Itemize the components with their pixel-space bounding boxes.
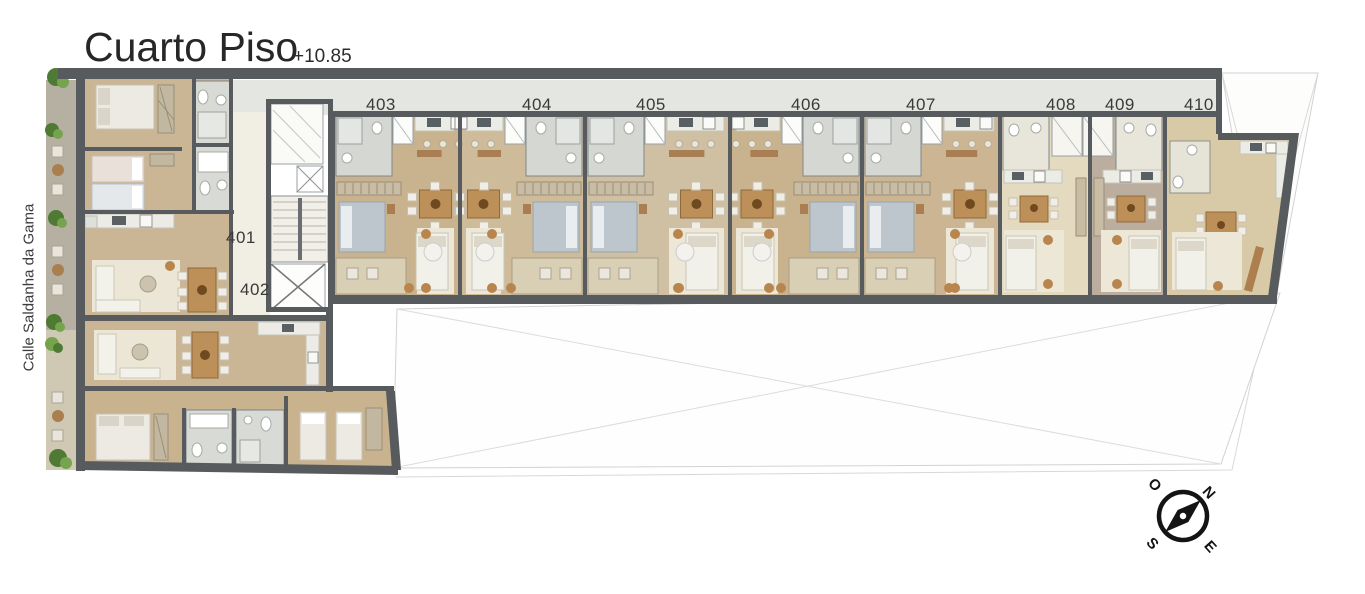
- elevation-label: +10.85: [293, 46, 352, 68]
- unit-label-402: 402: [240, 280, 270, 300]
- unit-label-410: 410: [1184, 95, 1214, 115]
- compass-west-label: O: [1144, 475, 1165, 495]
- unit-label-407: 407: [906, 95, 936, 115]
- core-corridor: [232, 112, 270, 336]
- floor-plan-page: N E S O Cuarto Piso +10.85 Calle Saldanh…: [0, 0, 1365, 594]
- unit-label-409: 409: [1105, 95, 1135, 115]
- stair-elevator-core: [271, 104, 328, 310]
- compass-east-label: E: [1200, 537, 1219, 556]
- street-balcony: [46, 80, 76, 470]
- street-name-label: Calle Saldanha da Gama: [21, 162, 38, 414]
- units-row: [331, 112, 1294, 302]
- unit-402: [84, 321, 397, 468]
- unit-label-406: 406: [791, 95, 821, 115]
- compass-rose: N E S O: [1114, 452, 1246, 584]
- compass-south-label: S: [1142, 534, 1161, 553]
- floor-plan-drawing: N E S O: [0, 0, 1365, 594]
- unit-label-403: 403: [366, 95, 396, 115]
- unit-401: [84, 79, 230, 315]
- page-title: Cuarto Piso: [84, 24, 298, 71]
- void-roof-area: [393, 293, 1280, 468]
- unit-label-404: 404: [522, 95, 552, 115]
- unit-label-401: 401: [226, 228, 256, 248]
- unit-label-408: 408: [1046, 95, 1076, 115]
- unit-label-405: 405: [636, 95, 666, 115]
